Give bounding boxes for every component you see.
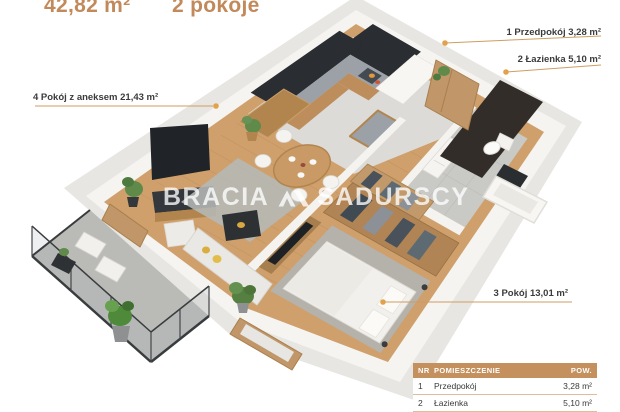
- dinner-plate: [298, 172, 305, 178]
- col-area: POW.: [552, 366, 592, 375]
- table-row: 1 Przedpokój 3,28 m²: [413, 378, 597, 395]
- rooms-count-title: 2 pokoje: [172, 0, 260, 18]
- dining-chair: [276, 130, 292, 143]
- watermark-brand-left: BRACIA: [163, 183, 269, 212]
- legend-table: NR POMIESZCZENIE POW. 1 Przedpokój 3,28 …: [413, 363, 597, 412]
- nightstand: [422, 284, 428, 290]
- brand-logo-icon: [276, 187, 310, 209]
- dinner-plate: [310, 159, 317, 165]
- label-room4-living: 4 Pokój z aneksem 21,43 m²: [33, 92, 158, 103]
- plant-pot: [112, 326, 130, 342]
- label-room3-bedroom: 3 Pokój 13,01 m²: [494, 288, 568, 299]
- leader-line-room2: [506, 65, 601, 72]
- dining-chair: [255, 155, 271, 168]
- potted-plant: [244, 285, 256, 295]
- floorplan-page: { "header": { "area_value": "42,82 m²", …: [0, 0, 620, 400]
- plant-pot: [246, 132, 258, 141]
- row-area: 3,28 m²: [552, 381, 592, 391]
- fruit-bowl: [237, 222, 245, 228]
- entrance-plant: [433, 74, 441, 81]
- fruit-bowl: [369, 73, 375, 77]
- row-nr: 1: [418, 381, 434, 391]
- table-row: 2 Łazienka 5,10 m²: [413, 395, 597, 412]
- watermark: BRACIA SADURSCY: [163, 183, 470, 212]
- potted-plant: [229, 282, 243, 294]
- potted-plant: [242, 116, 252, 124]
- col-nr: NR: [418, 366, 434, 375]
- leader-dot-room4: [213, 103, 219, 109]
- potted-plant: [105, 300, 119, 312]
- potted-plant: [59, 248, 69, 256]
- nightstand: [382, 341, 388, 347]
- potted-plant: [122, 301, 134, 311]
- leader-dot-room2: [503, 69, 509, 75]
- leader-dot-room3: [380, 299, 386, 305]
- label-room2-bathroom: 2 Łazienka 5,10 m²: [518, 54, 601, 65]
- plant-pot: [127, 197, 139, 207]
- label-room1-hall: 1 Przedpokój 3,28 m²: [506, 27, 601, 38]
- entrance-plant: [438, 66, 450, 76]
- col-name: POMIESZCZENIE: [434, 366, 552, 375]
- row-name: Przedpokój: [434, 381, 552, 391]
- sofa-pillow: [213, 255, 222, 263]
- dinner-plate: [289, 156, 296, 162]
- legend-table-header: NR POMIESZCZENIE POW.: [413, 363, 597, 378]
- leader-dot-room1: [442, 40, 448, 46]
- potted-plant: [122, 177, 134, 187]
- fruit-bowl: [375, 80, 380, 84]
- plant-pot: [237, 303, 249, 313]
- table-decor: [301, 163, 306, 167]
- sofa-pillow: [202, 247, 210, 254]
- watermark-brand-right: SADURSCY: [317, 183, 469, 212]
- total-area-title: 42,82 m²: [44, 0, 130, 18]
